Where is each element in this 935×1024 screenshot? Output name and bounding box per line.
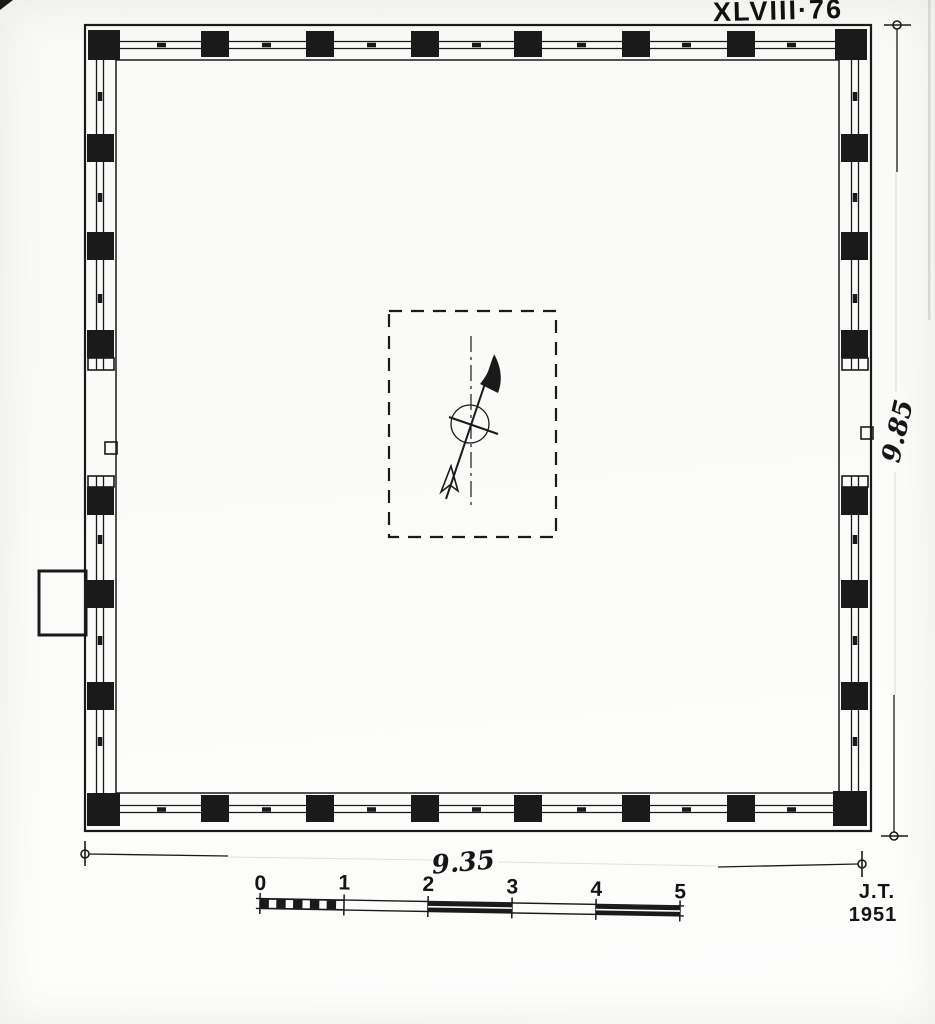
- column: [841, 487, 868, 515]
- scale-checker-segment: [260, 899, 344, 909]
- scanned-plan-sheet: 9.85 9.35: [0, 0, 935, 1024]
- floor-plan-drawing: 9.85 9.35: [0, 0, 935, 1024]
- scan-speck: [0, 0, 13, 10]
- column: [201, 795, 229, 822]
- north-arrow-box: [389, 311, 556, 537]
- corner-column: [88, 30, 120, 60]
- signature-label: J.T.: [859, 881, 895, 903]
- column: [841, 134, 868, 162]
- scale-label-0: 0: [254, 872, 266, 895]
- corner-column: [835, 29, 867, 60]
- dimension-line: [718, 864, 858, 867]
- column: [87, 232, 114, 260]
- width-dimension-label: 9.35: [430, 845, 496, 880]
- column: [727, 795, 755, 822]
- column: [841, 580, 868, 608]
- entrance-jamb: [88, 476, 114, 487]
- year-label: 1951: [849, 904, 898, 926]
- column: [841, 232, 868, 260]
- dimension-height: 9.85: [876, 21, 919, 840]
- scale-bar: 0 1 2 3 4 5: [254, 870, 687, 922]
- scale-label-2: 2: [422, 873, 434, 896]
- scale-label-3: 3: [506, 875, 518, 898]
- column: [306, 795, 334, 822]
- entrance-jamb: [842, 476, 868, 487]
- column: [841, 682, 868, 710]
- entrance-jamb: [88, 358, 114, 370]
- entrance-jamb: [842, 358, 868, 370]
- column: [87, 682, 114, 710]
- dimension-line: [89, 854, 228, 856]
- scale-label-1: 1: [338, 871, 350, 894]
- corner-column: [833, 791, 867, 826]
- annex: [39, 571, 86, 635]
- column: [514, 31, 542, 57]
- column: [87, 330, 114, 358]
- column: [727, 31, 755, 57]
- column: [87, 580, 114, 608]
- dimension-line-faint: [228, 857, 434, 860]
- column: [87, 134, 114, 162]
- dimension-width: 9.35: [81, 841, 866, 881]
- scale-label-4: 4: [590, 878, 602, 901]
- column: [306, 31, 334, 57]
- door-marker: [105, 442, 117, 454]
- column: [411, 795, 439, 822]
- plate-number-label: XLVIII·76: [713, 0, 844, 27]
- height-dimension-label: 9.85: [876, 397, 919, 465]
- column: [514, 795, 542, 822]
- column: [87, 487, 114, 515]
- column: [201, 31, 229, 57]
- temple-plan: [39, 25, 873, 831]
- dimension-line-faint: [498, 862, 716, 866]
- column: [411, 31, 439, 57]
- column: [622, 795, 650, 822]
- scan-edge-line: [928, 0, 931, 320]
- column: [622, 31, 650, 57]
- corner-column: [87, 793, 120, 826]
- dashed-box: [389, 311, 556, 537]
- scale-label-5: 5: [674, 880, 686, 903]
- column: [841, 330, 868, 358]
